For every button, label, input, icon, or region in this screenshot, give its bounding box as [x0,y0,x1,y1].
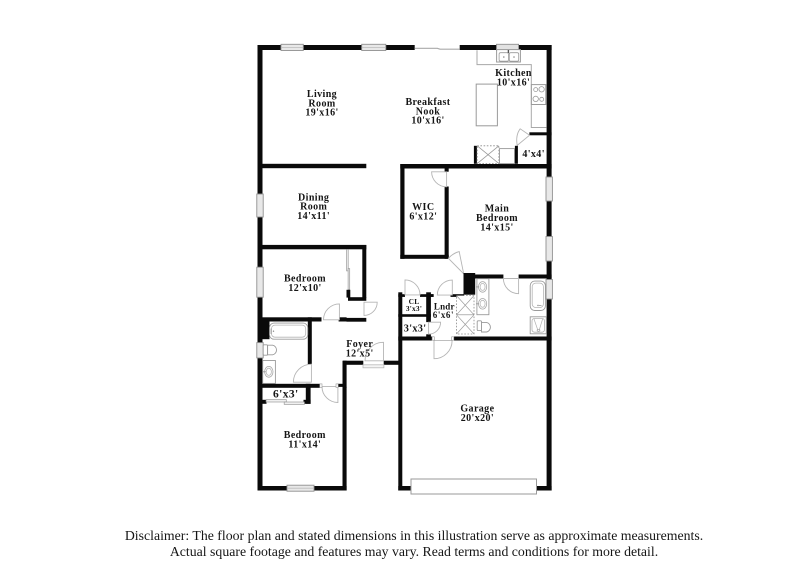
svg-text:4'x4': 4'x4' [522,149,545,160]
svg-text:10'x16': 10'x16' [497,78,530,89]
svg-text:3'x3': 3'x3' [406,304,422,313]
svg-text:14'x11': 14'x11' [297,211,330,222]
svg-text:12'x5': 12'x5' [346,349,374,360]
svg-text:6'x6': 6'x6' [433,310,454,320]
svg-text:10'x16': 10'x16' [411,116,444,127]
svg-text:19'x16': 19'x16' [305,108,338,119]
svg-text:Actual square footage and feat: Actual square footage and features may v… [170,544,658,559]
svg-text:14'x15': 14'x15' [480,222,513,233]
svg-text:6'x12': 6'x12' [409,211,437,222]
svg-text:11'x14': 11'x14' [288,440,321,451]
svg-text:12'x10': 12'x10' [288,283,321,294]
svg-text:6'x3': 6'x3' [273,388,299,400]
svg-text:20'x20': 20'x20' [461,413,494,424]
svg-text:3'x3': 3'x3' [404,324,427,335]
svg-text:Disclaimer: The floor plan and: Disclaimer: The floor plan and stated di… [125,528,703,543]
